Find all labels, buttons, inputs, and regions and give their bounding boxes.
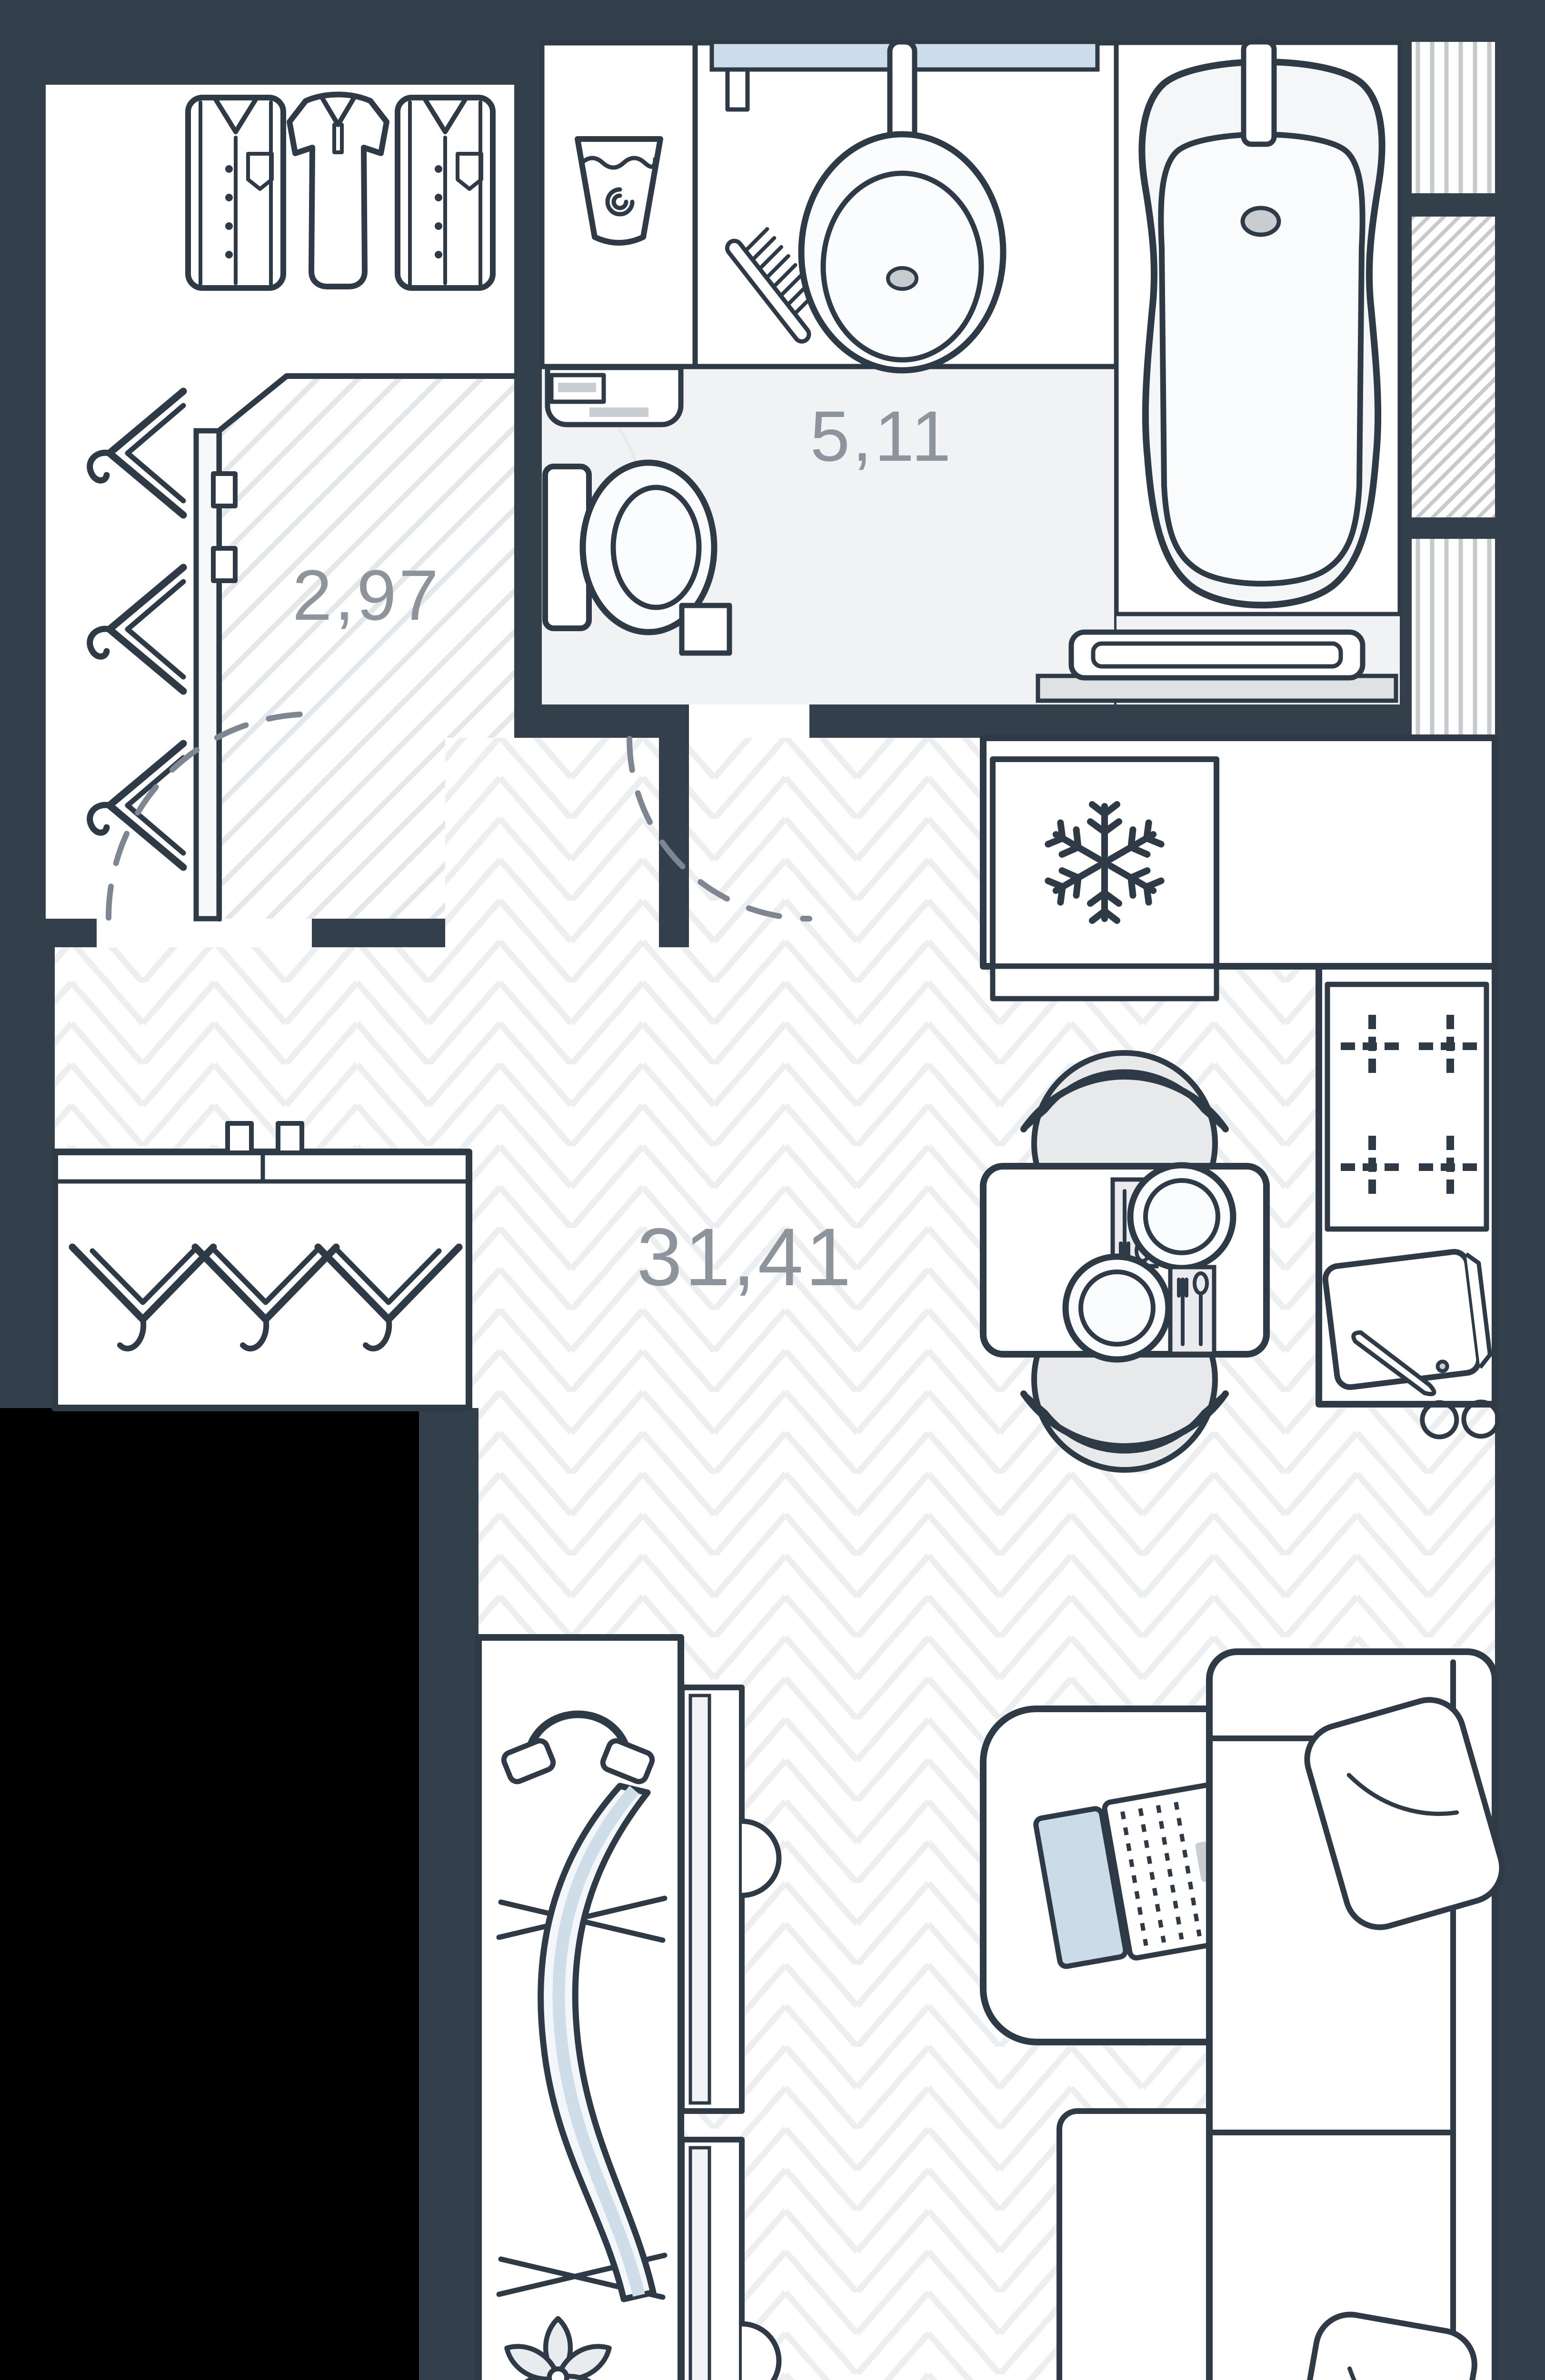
unit-handle — [278, 1123, 302, 1153]
sofa-chaise — [1059, 2111, 1221, 2380]
shirt-icon — [188, 98, 283, 288]
tub-faucet-icon — [1244, 42, 1274, 144]
entry-hanger-unit — [55, 1123, 469, 1408]
outside-area-left — [0, 1408, 419, 2380]
bathroom-box — [682, 605, 729, 653]
room-area-label: 2,97 — [292, 555, 441, 635]
tub-drain — [1243, 208, 1279, 235]
media-console — [478, 1637, 681, 2380]
closet-handle — [213, 548, 235, 581]
place-setting — [1066, 1257, 1214, 1359]
ventilation-shafts — [1412, 42, 1495, 741]
towel-radiator — [1038, 632, 1396, 701]
closet-handle — [213, 474, 235, 506]
room-wardrobe: 2,97 — [46, 85, 514, 947]
bathroom-door-opening — [689, 704, 809, 738]
floor-plan: 2,97 — [0, 0, 1545, 2380]
washing-machine — [542, 43, 695, 367]
shelf-bracket — [728, 69, 748, 109]
wardrobe-door-opening — [97, 919, 312, 947]
room-area-label: 5,11 — [810, 396, 954, 476]
bathtub — [1116, 42, 1400, 614]
shaft-hatch — [1412, 539, 1495, 741]
room-bathroom: 5,11 — [542, 42, 1400, 738]
room-area-label: 31,41 — [637, 1211, 853, 1303]
place-setting — [1113, 1165, 1233, 1268]
shirt-icon — [398, 98, 493, 288]
unit-handle — [228, 1123, 251, 1153]
fridge-shelf — [993, 966, 1216, 999]
stove — [1327, 984, 1486, 1229]
faucet-icon — [890, 42, 915, 146]
shaft-hatch — [1412, 217, 1495, 517]
shaft-hatch — [1412, 42, 1495, 193]
